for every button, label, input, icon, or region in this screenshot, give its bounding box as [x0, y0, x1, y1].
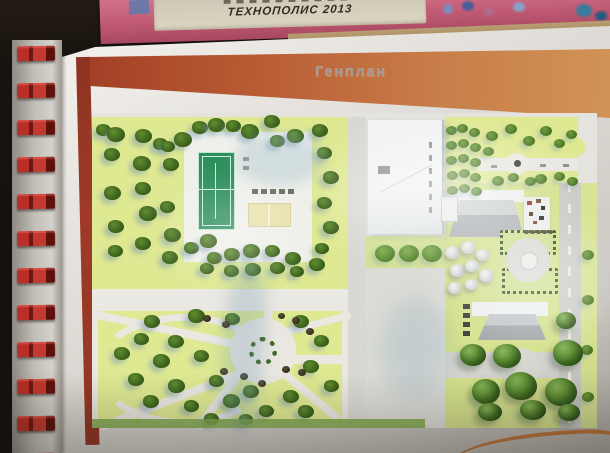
binding-tooth — [17, 379, 55, 395]
binding-tooth — [17, 157, 55, 173]
cover-decor-tab — [129, 0, 150, 15]
binding-tooth — [17, 342, 55, 358]
binding-tooth — [17, 46, 55, 62]
cover-label-text: ТЕХНОПОЛИС 2013 — [154, 1, 427, 21]
slide-title: Генплан — [92, 60, 610, 84]
comb-binding — [12, 40, 62, 453]
binding-tooth — [17, 268, 55, 284]
photo-of-album-page: ТЕХНОПОЛИС 2013 Генплан — [0, 0, 610, 453]
binding-tooth — [17, 416, 55, 432]
binding-tooth — [17, 120, 55, 136]
binding-tooth — [17, 231, 55, 247]
binding-tooth — [17, 194, 55, 210]
binding-tooth — [17, 305, 55, 321]
binding-tooth — [17, 83, 55, 99]
